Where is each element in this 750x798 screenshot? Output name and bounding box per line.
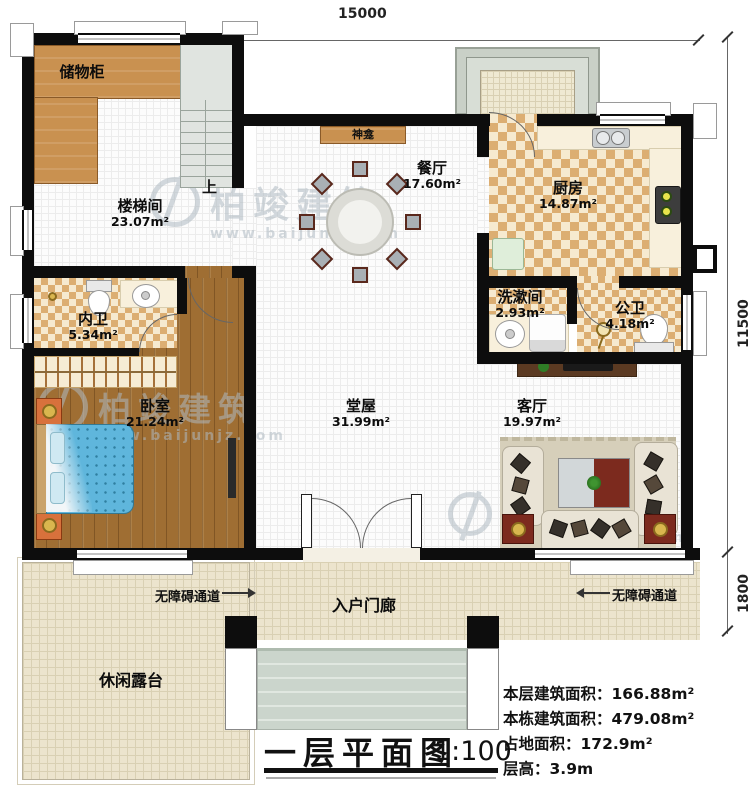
stat-label: 本层建筑面积： (503, 685, 612, 703)
room-area: 2.93m² (460, 306, 580, 320)
title-underline (264, 768, 498, 773)
stat-label: 占地面积： (503, 735, 581, 753)
room-label-bedroom: 卧室 21.24m² (95, 398, 215, 430)
wall (477, 276, 577, 288)
window (22, 210, 34, 250)
room-name: 储物柜 (22, 64, 142, 81)
entry-door-leaf (301, 494, 312, 548)
stair-treads (180, 100, 232, 188)
dining-chair (405, 214, 421, 230)
stat-value: 166.88m² (612, 685, 695, 703)
room-name: 公卫 (570, 300, 690, 317)
sink-drain (141, 291, 150, 300)
room-area: 5.34m² (33, 328, 153, 342)
wall (177, 278, 187, 314)
room-name: 餐厅 (372, 160, 492, 177)
room-label-dining: 餐厅 17.60m² (372, 160, 492, 192)
floor-plan: 15000 11500 1800 柏竣建筑 www.baijunjz.com 柏… (0, 0, 750, 798)
window (78, 33, 180, 45)
shrine-shelf: 神龛 (320, 126, 406, 144)
porch-column-base (225, 648, 257, 730)
dining-table-top (338, 200, 382, 244)
room-area: 31.99m² (301, 415, 421, 429)
stats-block: 本层建筑面积：166.88m² 本栋建筑面积：479.08m² 占地面积：172… (503, 682, 694, 782)
arrow-right-icon (248, 588, 256, 598)
dining-chair (352, 267, 368, 283)
window (600, 114, 665, 126)
sink-basin (596, 131, 610, 145)
wardrobe-hanger-rail (34, 356, 177, 388)
dimension-right-lower-label: 1800 (736, 574, 750, 613)
porch-column-base (467, 648, 499, 730)
stat-label: 层高： (503, 760, 550, 778)
wall (232, 266, 244, 278)
bed-pillow (50, 472, 65, 504)
wall (232, 33, 244, 188)
stair-stringer (205, 100, 206, 188)
wall (477, 352, 693, 364)
wall (477, 126, 489, 157)
room-label-living: 客厅 19.97m² (472, 398, 592, 430)
wall (619, 276, 693, 288)
stat-label: 本栋建筑面积： (503, 710, 612, 728)
storage-cabinet-side (34, 97, 98, 184)
stat-row: 占地面积：172.9m² (503, 732, 694, 757)
room-name: 楼梯间 (80, 198, 200, 215)
window-sill (73, 560, 193, 575)
bed-pillow (50, 432, 65, 464)
arrow-line (222, 592, 248, 594)
title-underline-thin (266, 777, 496, 779)
room-name: 洗漱间 (460, 289, 580, 306)
room-label-entry-porch: 入户门廊 (304, 597, 424, 615)
room-area: 19.97m² (472, 415, 592, 429)
wall (685, 548, 700, 560)
wall (22, 548, 77, 560)
window-sill (693, 291, 707, 356)
entry-steps (257, 648, 467, 730)
bedroom-tv (228, 438, 236, 498)
stat-value: 172.9m² (581, 735, 653, 753)
room-label-stair-hall: 楼梯间 23.07m² (80, 198, 200, 230)
room-label-washroom: 洗漱间 2.93m² (460, 289, 580, 321)
dimension-right-upper-label: 11500 (736, 299, 750, 348)
window (77, 548, 187, 560)
room-name: 厨房 (508, 180, 628, 197)
room-label-public-bath: 公卫 4.18m² (570, 300, 690, 332)
back-porch-landing (480, 70, 575, 115)
window-sill (570, 560, 694, 575)
accessible-path-label: 无障碍通道 (612, 585, 677, 604)
refrigerator (492, 238, 524, 270)
room-name: 客厅 (472, 398, 592, 415)
window (535, 548, 685, 560)
stat-row: 本层建筑面积：166.88m² (503, 682, 694, 707)
wall (34, 348, 139, 356)
dimension-line-right (727, 37, 728, 634)
room-area: 17.60m² (372, 177, 492, 191)
wall (681, 114, 693, 295)
room-label-main-hall: 堂屋 31.99m² (301, 398, 421, 430)
room-label-terrace: 休闲露台 (71, 672, 191, 690)
room-area: 4.18m² (570, 317, 690, 331)
arrow-line (584, 592, 610, 594)
dining-chair (352, 161, 368, 177)
entry-door-leaf (411, 494, 422, 548)
wall (22, 33, 34, 210)
bedroom-door-threshold (185, 266, 232, 278)
dimension-top-label: 15000 (338, 6, 387, 22)
nightstand-lamp (42, 404, 57, 419)
arrow-left-icon (576, 588, 584, 598)
room-area: 23.07m² (80, 215, 200, 229)
corner-pilaster (222, 21, 258, 35)
room-name: 入户门廊 (304, 597, 424, 615)
room-area: 21.24m² (95, 415, 215, 429)
drawing-scale: 1:100 (434, 736, 512, 767)
stat-row: 本栋建筑面积：479.08m² (503, 707, 694, 732)
side-table-lamp (653, 522, 668, 537)
stove-burner (661, 191, 672, 202)
accessible-path-label: 无障碍通道 (155, 586, 220, 605)
floor-drain (48, 292, 57, 301)
wall (22, 343, 34, 560)
side-table-lamp (511, 522, 526, 537)
room-name: 堂屋 (301, 398, 421, 415)
entrance-threshold (303, 548, 420, 562)
room-area: 14.87m² (508, 197, 628, 211)
wall-flue-box (693, 245, 717, 273)
stat-value: 3.9m (550, 760, 594, 778)
wall (537, 114, 600, 126)
nightstand-lamp (42, 518, 57, 533)
room-name: 休闲露台 (71, 672, 191, 690)
corner-pilaster (10, 23, 34, 57)
stairs-up-label: 上 (202, 176, 217, 197)
sink-drain (505, 329, 515, 339)
stove-burner (661, 206, 672, 217)
porch-column (225, 616, 257, 648)
porch-column (467, 616, 499, 648)
wall (420, 548, 535, 560)
room-label-storage: 储物柜 (22, 64, 142, 81)
wall (22, 266, 185, 278)
room-label-inner-bath: 内卫 5.34m² (33, 311, 153, 343)
wall (681, 350, 693, 560)
wall (477, 233, 489, 276)
room-name: 内卫 (33, 311, 153, 328)
wall (244, 114, 490, 126)
stat-row: 层高：3.9m (503, 757, 694, 782)
stat-value: 479.08m² (612, 710, 695, 728)
dining-chair (299, 214, 315, 230)
sink-basin (611, 131, 625, 145)
coffee-table-plant (587, 476, 601, 490)
wall (244, 266, 256, 560)
corner-pilaster (693, 103, 717, 139)
room-label-kitchen: 厨房 14.87m² (508, 180, 628, 212)
room-name: 卧室 (95, 398, 215, 415)
